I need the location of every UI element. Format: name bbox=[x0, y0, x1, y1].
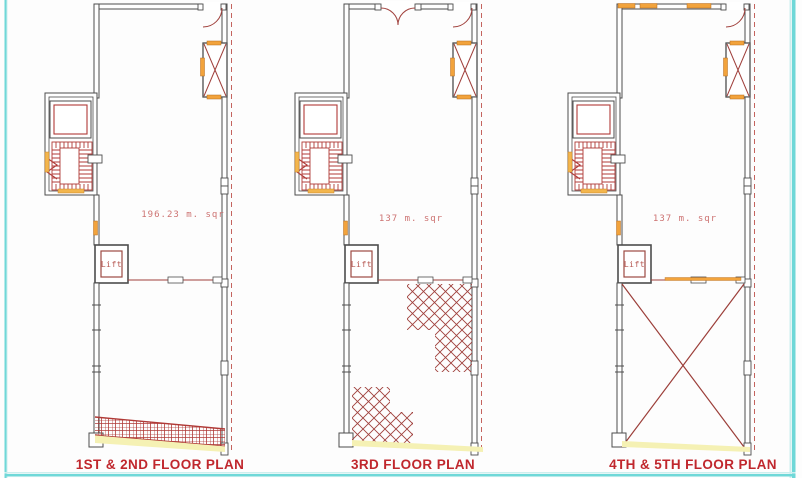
plan-title: 3RD FLOOR PLAN bbox=[351, 457, 475, 472]
plan-title: 4TH & 5TH FLOOR PLAN bbox=[609, 457, 777, 472]
double-door-swing bbox=[375, 1, 421, 25]
area-label: 137 m. sqr bbox=[653, 214, 717, 224]
lift-label: Lift bbox=[351, 260, 372, 269]
ramp-strip bbox=[352, 440, 483, 452]
plan-title: 1ST & 2ND FLOOR PLAN bbox=[76, 457, 245, 472]
ramp-strip bbox=[622, 441, 750, 452]
floor-plan-1st-2nd: 196.23 m. sqr Lift 1ST & 2ND FLOOR PLAN bbox=[45, 2, 244, 472]
ramp-hatch bbox=[95, 417, 225, 452]
floor-hatch-patches bbox=[352, 284, 472, 443]
area-label: 137 m. sqr bbox=[379, 214, 443, 224]
drawing-frame bbox=[5, 0, 796, 478]
floor-plan-4th-5th: 137 m. sqr Lift 4TH & 5TH FLOOR PLAN bbox=[568, 2, 777, 472]
interior-window-strip bbox=[665, 278, 741, 281]
area-label: 196.23 m. sqr bbox=[141, 210, 224, 220]
cad-drawing-canvas: 196.23 m. sqr Lift 1ST & 2ND FLOOR PLAN … bbox=[0, 0, 802, 478]
floor-plan-3rd: 137 m. sqr Lift 3RD FLOOR PLAN bbox=[295, 1, 483, 472]
void-x-mark bbox=[622, 284, 744, 447]
lift-label: Lift bbox=[101, 260, 122, 269]
floor-plans-drawing: 196.23 m. sqr Lift 1ST & 2ND FLOOR PLAN … bbox=[0, 0, 802, 478]
lift-label: Lift bbox=[624, 260, 645, 269]
